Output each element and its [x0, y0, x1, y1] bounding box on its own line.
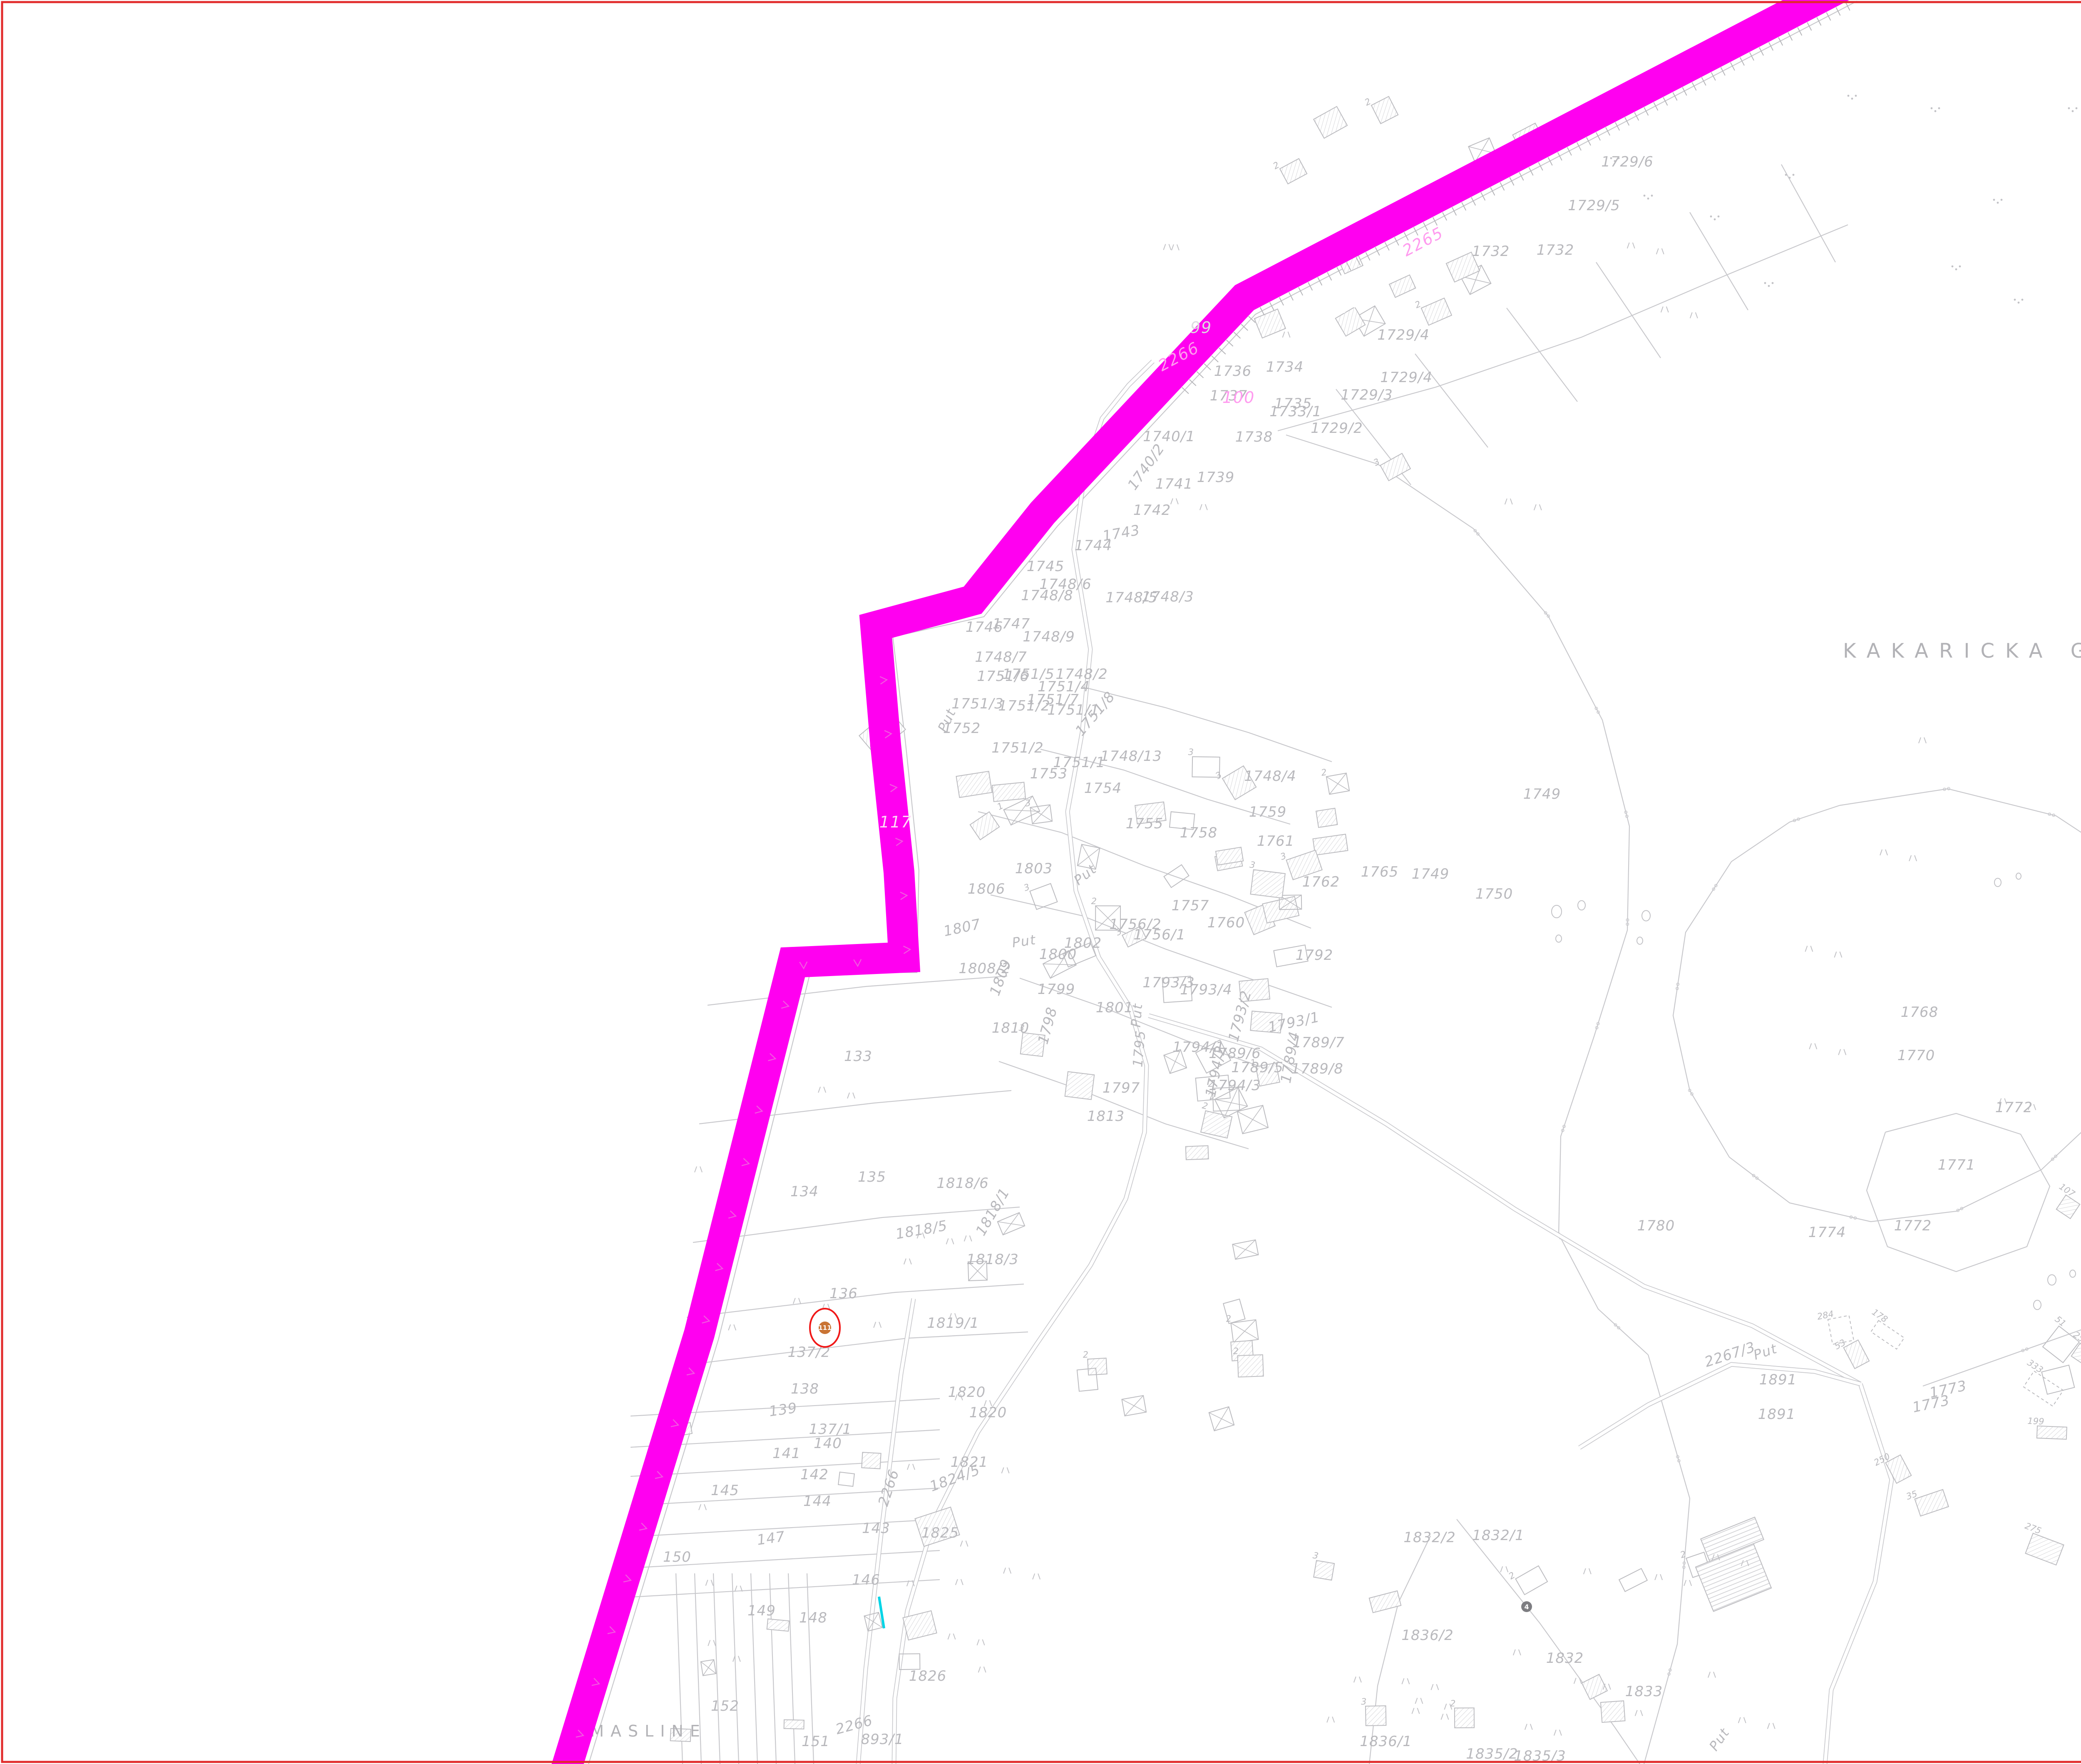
dot-cluster-symbol: [1855, 95, 1857, 97]
dot-cluster-symbol: [2018, 302, 2020, 304]
cadastral-map-sheet: 3321232132233332223222233225727528026528…: [0, 0, 2081, 1764]
road-scarp-tick: [1189, 380, 1196, 386]
parcel-number-label: 1818/6: [936, 1175, 989, 1192]
building-footprint: 2: [1083, 1349, 1107, 1375]
dot-cluster-symbol: [1955, 268, 1957, 271]
parcel-number-label: 141: [772, 1445, 801, 1462]
building-number-label: 199: [2027, 1416, 2044, 1427]
sinkhole-symbol: [2034, 1300, 2041, 1310]
building-number-label: 51: [2053, 1314, 2068, 1329]
sinkhole-symbol: [1637, 937, 1643, 944]
parcel-number-label: 1832/1: [1472, 1527, 1525, 1544]
parcel-number-label: 1748/9: [1023, 629, 1075, 645]
parcel-number-label: 1780: [1637, 1217, 1675, 1234]
road-scarp-tick: [1241, 324, 1248, 330]
building-footprint: 2: [1271, 150, 1307, 186]
grass-tuft-symbol: [1834, 952, 1842, 957]
parcel-boundary-line: [1923, 1207, 2081, 1386]
building-outline: [1201, 1111, 1232, 1138]
building-number-label: 3: [1214, 770, 1224, 781]
parcel-number-label: 1735: [1274, 395, 1312, 412]
building-number-label: 2: [1363, 96, 1373, 107]
sinkhole-symbol: [1994, 878, 2001, 887]
building-cross: [1232, 1240, 1258, 1260]
grass-tuft-symbol: [948, 1634, 956, 1640]
grass-tuft-symbol: [699, 1504, 706, 1510]
building-outline: [784, 1720, 804, 1729]
grass-tuft-symbol: [1656, 248, 1664, 254]
grass-tuft-symbol: [1919, 738, 1926, 743]
parcel-number-label: 1836/2: [1401, 1627, 1454, 1644]
grass-tuft-symbol: [1635, 1710, 1643, 1716]
building-footprint: [1237, 1106, 1268, 1134]
grass-tuft-symbol: [706, 1580, 713, 1586]
building-outline: [992, 782, 1026, 801]
parcel-number-label: 1826: [909, 1668, 947, 1684]
dot-cluster-symbol: [1785, 174, 1787, 176]
building-number-label: 1: [996, 801, 1005, 812]
building-footprint: [1186, 1146, 1209, 1160]
building-outline: [1380, 453, 1411, 481]
parcel-number-label: 1806: [968, 881, 1006, 897]
building-number-label: 178: [1870, 1307, 1890, 1324]
parcel-number-label: 1751/2: [998, 698, 1050, 714]
building-footprint: 333: [2015, 1357, 2069, 1406]
boundary-parallel-line: [579, 1, 1857, 1764]
parcel-number-label: 1772: [1995, 1099, 2033, 1116]
parcel-number-label: 1798: [1035, 1005, 1060, 1046]
building-number-label: 2: [1233, 1346, 1239, 1356]
dot-cluster-symbol: [1647, 198, 1649, 200]
parcel-number-label: 151: [802, 1733, 830, 1750]
boundary-road-label: Put: [1337, 287, 1371, 317]
building-footprint: 178: [1862, 1307, 1910, 1349]
parcel-number-label: 1801: [1096, 999, 1134, 1016]
parcel-number-label: 1772: [1894, 1217, 1932, 1234]
parcel-number-label: 1891: [1759, 1371, 1797, 1388]
building-footprint: [1232, 1240, 1258, 1260]
parcel-number-label: 1818/1: [973, 1185, 1013, 1239]
grass-tuft-symbol: [904, 1259, 911, 1265]
grass-tuft-symbol: [818, 1087, 826, 1093]
dot-cluster-symbol: [1789, 177, 1791, 179]
building-footprint: [767, 1619, 790, 1631]
building-footprint: [2041, 1365, 2074, 1394]
parcel-number-label: 1820: [969, 1404, 1007, 1421]
grass-tuft-symbol: [1708, 1672, 1716, 1678]
parcel-number-label: 1748/7: [975, 649, 1027, 666]
building-outline: [1088, 1358, 1107, 1375]
grass-tuft-symbol: [1505, 499, 1512, 504]
building-number-label: 2: [1320, 767, 1327, 778]
grass-tuft-symbol: [1431, 1684, 1438, 1690]
dot-cluster-symbol: [1997, 202, 1999, 204]
building-outline: [1844, 1340, 1869, 1369]
building-outline: [1915, 1490, 1949, 1516]
parcel-number-label: 1748/3: [1142, 589, 1194, 605]
parcel-number-label: 139: [768, 1400, 798, 1420]
grass-tuft-symbol: [733, 1656, 740, 1662]
sinkhole-symbol: [1578, 901, 1585, 910]
road-scarp-tick: [1234, 332, 1240, 338]
building-outline: [2056, 1195, 2080, 1219]
building-footprint: [1164, 865, 1189, 888]
parcel-number-label: 1732: [1537, 242, 1574, 258]
parcel-number-label: 1799: [1038, 981, 1075, 998]
parcel-number-label: 1748/8: [1021, 587, 1073, 604]
building-footprint: [784, 1720, 804, 1729]
sinkhole-symbol: [2048, 1275, 2056, 1285]
grass-tuft-symbol: [1171, 498, 1178, 504]
parcel-number-label: 138: [791, 1381, 819, 1397]
building-outline: [1030, 884, 1057, 909]
building-footprint: [1316, 808, 1337, 827]
parcel-number-label: 1729/3: [1341, 387, 1393, 403]
building-number-label: 3: [1361, 1697, 1367, 1707]
parcel-number-label: 149: [747, 1603, 776, 1619]
parcel-number-label: 1740/1: [1143, 428, 1195, 445]
building-outline: [1366, 1706, 1386, 1726]
building-outline: [2024, 1371, 2063, 1406]
parcel-number-label: 1749: [1412, 866, 1450, 882]
building-footprint: [1619, 1568, 1647, 1591]
road-name-label: Put: [1011, 932, 1037, 951]
sinkhole-symbol: [1642, 911, 1650, 921]
grass-tuft-symbol: [1172, 244, 1179, 250]
building-outline: [1619, 1568, 1647, 1591]
parcel-number-label: 1751/2: [991, 740, 1044, 756]
parcel-number-label: 1751/3: [951, 696, 1004, 712]
parcel-number-label: 1818/5: [894, 1217, 949, 1243]
sinkhole-symbol: [1552, 905, 1562, 918]
parcel-number-label: 1820: [948, 1384, 986, 1401]
parcel-number-label: 1800: [1039, 946, 1077, 963]
road-scarp-tick: [1204, 364, 1211, 370]
building-cross: [1231, 1320, 1258, 1343]
building-number-label: 2: [1271, 160, 1281, 171]
building-footprint: 2: [1363, 88, 1398, 126]
grass-tuft-symbol: [1402, 1678, 1409, 1684]
parcel-number-label: 1749: [1523, 786, 1561, 802]
parcel-number-label: 1738: [1235, 429, 1273, 445]
parcel-number-label: 145: [711, 1482, 739, 1499]
grass-tuft-symbol: [1534, 504, 1542, 510]
building-footprint: [1209, 1407, 1234, 1431]
parcel-number-label: 1821: [951, 1454, 988, 1471]
place-name-label: MASLINE: [590, 1722, 707, 1740]
building-footprint: [1313, 834, 1348, 855]
parcel-number-label: 1792: [1296, 947, 1334, 964]
building-footprint: 53: [1833, 1332, 1870, 1372]
grass-tuft-symbol: [793, 1298, 801, 1304]
grass-tuft-symbol: [1354, 1677, 1361, 1682]
parcel-number-label: 1762: [1302, 874, 1340, 890]
road-name-label: Put: [1751, 1340, 1779, 1363]
parcel-boundary-line: [1867, 1113, 2050, 1272]
parcel-number-label: 1734: [1266, 359, 1304, 375]
grass-tuft-symbol: [1690, 312, 1698, 318]
building-footprint: [992, 782, 1026, 801]
road-fill: [1825, 1384, 1892, 1764]
parcel-number-label: 1832/2: [1403, 1529, 1456, 1546]
grass-tuft-symbol: [907, 1464, 915, 1470]
road-name-label: Put: [1128, 1002, 1146, 1028]
parcel-number-label: 143: [862, 1520, 890, 1537]
parcel-number-label: 1832: [1546, 1650, 1584, 1667]
grass-tuft-symbol: [956, 1579, 963, 1585]
building-footprint: 2: [1225, 1310, 1259, 1343]
dot-cluster-symbol: [1959, 266, 1961, 268]
building-outline: [1455, 1708, 1474, 1728]
survey-point-marker: 4: [1521, 1601, 1532, 1612]
sinkhole-symbol: [2070, 1270, 2076, 1277]
parcel-number-label: 893/1: [861, 1731, 904, 1748]
building-footprint: 107: [2048, 1181, 2081, 1218]
grass-tuft-symbol: [728, 1324, 736, 1330]
building-footprint: 3: [1361, 1696, 1386, 1726]
parcel-number-label: 1797: [1103, 1080, 1140, 1096]
parcel-number-label: 1891: [1758, 1406, 1796, 1423]
building-number-label: 2: [1083, 1349, 1089, 1360]
building-outline: [1313, 834, 1348, 855]
parcel-number-label: 1761: [1257, 833, 1295, 850]
parcel-number-label: 1793/4: [1180, 981, 1232, 998]
parcel-number-label: 1813: [1087, 1108, 1125, 1125]
building-outline: [956, 771, 992, 798]
road-casing: [1825, 1384, 1892, 1764]
grass-tuft-symbol: [1684, 1580, 1691, 1586]
grass-tuft-symbol: [961, 1541, 968, 1547]
building-footprint: [956, 771, 992, 798]
dot-cluster-symbol: [1851, 98, 1853, 100]
building-footprint: 2: [1450, 1698, 1474, 1728]
building-outline: [1371, 97, 1398, 124]
parcel-number-label: 133: [844, 1048, 872, 1065]
parcel-boundary-line: [1596, 262, 1661, 358]
dot-cluster-symbol: [1718, 216, 1720, 218]
parcel-number-label: 136: [829, 1285, 858, 1302]
strip-parcel-line: [751, 1573, 757, 1764]
grass-tuft-symbol: [1002, 1468, 1009, 1473]
parcel-boundary-line: [683, 1332, 1028, 1365]
grass-tuft-symbol: [1738, 1717, 1746, 1723]
building-number-label: 275: [2024, 1521, 2043, 1536]
parcel-number-label: 1748/13: [1100, 748, 1162, 765]
parcel-number-label: 152: [711, 1698, 739, 1714]
parcel-number-label: 150: [663, 1549, 691, 1565]
grass-tuft-symbol: [1880, 850, 1887, 855]
parcel-number-label: 1729/4: [1380, 369, 1433, 386]
building-outline: [1251, 870, 1285, 898]
building-number-label: 3: [1188, 747, 1194, 757]
grass-tuft-symbol: [964, 1235, 972, 1241]
grass-tuft-symbol: [1655, 1574, 1662, 1580]
parcel-number-label: 148: [799, 1610, 827, 1626]
boundary-road-label: 117: [879, 813, 912, 831]
grass-tuft-symbol: [1500, 1566, 1508, 1572]
building-number-label: 3: [1249, 860, 1256, 870]
grass-tuft-symbol: [1163, 244, 1171, 250]
building-footprint: 199: [2027, 1416, 2067, 1439]
building-outline: [1582, 1675, 1607, 1699]
parcel-number-label: 1825: [921, 1525, 959, 1541]
building-footprint: [1582, 1675, 1607, 1699]
building-number-label: 2: [1201, 1101, 1209, 1111]
markers-layer: 1114: [2, 0, 2081, 1762]
building-outline: [2071, 1343, 2081, 1367]
sinkhole-symbol: [2016, 873, 2021, 880]
building-footprint: [1122, 1396, 1146, 1416]
building-footprint: 2: [1320, 764, 1349, 795]
boundary-road-label: 100: [1222, 388, 1255, 407]
boundary-road-label: 99: [1190, 318, 1212, 337]
grass-tuft-symbol: [1554, 1730, 1562, 1736]
building-outline: [838, 1472, 854, 1486]
dot-cluster-symbol: [1768, 285, 1770, 287]
parcel-number-label: 1794/3: [1209, 1077, 1261, 1094]
control-point-number: 111: [818, 1324, 831, 1332]
building-footprint: [1389, 275, 1415, 298]
parcel-number-label: 1748/4: [1244, 768, 1296, 785]
building-outline: [1389, 275, 1415, 298]
building-outline: [1238, 1355, 1264, 1377]
dot-cluster-symbol: [2068, 107, 2070, 109]
building-cross: [701, 1660, 716, 1675]
parcel-number-label: 1744: [1075, 537, 1113, 554]
building-footprint: [1314, 107, 1347, 138]
parcel-number-label: 1810: [992, 1020, 1030, 1036]
building-footprint: [998, 1212, 1025, 1235]
building-footprint: 3: [1246, 860, 1286, 898]
road-name-label: Put: [1706, 1725, 1733, 1754]
parcel-number-label: 1732: [1472, 243, 1510, 260]
building-outline: [1164, 865, 1189, 888]
building-number-label: 3: [1279, 851, 1287, 862]
parcel-number-label: 1833: [1625, 1683, 1663, 1700]
building-cross: [1209, 1407, 1234, 1431]
building-footprint: 2: [1197, 1101, 1234, 1138]
parcel-number-label: 1819/1: [927, 1315, 979, 1332]
building-outline: [1186, 1146, 1209, 1160]
dot-cluster-symbol: [1993, 199, 1995, 201]
parcel-number-label: 1760: [1207, 914, 1245, 931]
strip-parcel-line: [770, 1573, 776, 1764]
building-outline: [1871, 1320, 1904, 1349]
parcel-boundary-line: [1781, 164, 1835, 262]
grass-tuft-symbol: [708, 1640, 715, 1646]
building-outline: [2037, 1426, 2067, 1439]
road-scarp-tick: [1197, 372, 1203, 378]
building-outline: [1601, 1701, 1625, 1722]
parcel-boundary-line: [1507, 308, 1577, 402]
grass-tuft-symbol: [977, 1640, 985, 1645]
building-outline: [1254, 309, 1286, 338]
road-scarp-tick: [1219, 348, 1226, 354]
parcel-number-label: 142: [800, 1466, 829, 1483]
building-footprint: 35: [1905, 1481, 1949, 1518]
parcel-number-label: 1754: [1084, 780, 1122, 797]
cadastral-map-canvas: 3321232132233332223222233225727528026528…: [0, 0, 2081, 1764]
building-outline: [1065, 1072, 1095, 1100]
parcel-number-label: 1773: [1911, 1392, 1951, 1416]
road-scarp-tick: [1212, 356, 1218, 362]
parcel-number-label: 1756/1: [1133, 927, 1186, 943]
building-outline: [1515, 1566, 1547, 1595]
grass-tuft-symbol: [1584, 1568, 1591, 1574]
building-number-label: 284: [1816, 1309, 1835, 1322]
building-number-label: 2: [1507, 1570, 1517, 1581]
dot-cluster-symbol: [1931, 107, 1933, 109]
grass-tuft-symbol: [1805, 946, 1813, 952]
grass-tuft-symbol: [1809, 1043, 1817, 1049]
parcel-number-label: 1736: [1214, 363, 1252, 380]
building-outline: [862, 1452, 881, 1469]
survey-point-number: 4: [1524, 1603, 1529, 1611]
building-number-label: 3: [1022, 882, 1031, 893]
dot-cluster-symbol: [2072, 110, 2074, 112]
building-outline: [1421, 298, 1452, 325]
map-sheet-frame: [2, 2, 2081, 1762]
parcel-boundary-line: [1286, 435, 1648, 1355]
building-footprint: [1601, 1701, 1625, 1722]
road-name-label: 1795: [1130, 1029, 1149, 1068]
grass-tuft-symbol: [1909, 855, 1917, 861]
strip-parcel-line: [713, 1573, 720, 1764]
grass-tuft-symbol: [1838, 1049, 1846, 1055]
grass-tuft-symbol: [1415, 1698, 1423, 1704]
parcel-number-label: 140: [814, 1435, 842, 1452]
grass-tuft-symbol: [978, 1667, 986, 1672]
parcel-number-label: 1729/6: [1601, 154, 1654, 170]
parcel-boundary-line: [1415, 354, 1488, 447]
grass-tuft-symbol: [847, 1093, 855, 1098]
grass-tuft-symbol: [1412, 1708, 1419, 1714]
building-outline: [767, 1619, 790, 1631]
parcel-number-label: 1789/5: [1231, 1059, 1284, 1076]
parcel-number-label: 1729/4: [1377, 327, 1430, 343]
grass-tuft-symbol: [1513, 1650, 1521, 1655]
building-outline: [2041, 1365, 2074, 1394]
dot-cluster-symbol: [1714, 219, 1716, 221]
dot-cluster-symbol: [1848, 95, 1850, 97]
grass-tuft-symbol: [874, 1322, 881, 1328]
grass-tuft-symbol: [1200, 504, 1207, 510]
building-footprint: 2: [1507, 1558, 1547, 1597]
parcel-number-label: 1759: [1249, 804, 1287, 820]
building-number-label: 2: [1679, 1549, 1687, 1560]
control-point-marker: 111: [810, 1309, 840, 1347]
strip-parcel-line: [788, 1573, 795, 1764]
dot-cluster-symbol: [1938, 107, 1940, 109]
grass-tuft-symbol: [1441, 1714, 1448, 1719]
building-footprint: [838, 1472, 854, 1486]
road-scarp-tick: [1182, 388, 1189, 394]
building-footprint: [1254, 309, 1286, 338]
parcel-number-label: 1742: [1133, 502, 1171, 519]
dot-cluster-symbol: [1710, 216, 1712, 218]
grass-tuft-symbol: [1033, 1573, 1040, 1579]
grass-tuft-symbol: [1283, 332, 1290, 338]
building-number-label: 2: [1091, 896, 1097, 906]
strip-parcel-line: [732, 1573, 739, 1764]
building-footprint: 284: [1816, 1306, 1854, 1346]
parcel-number-label: 135: [858, 1169, 886, 1185]
parcel-number-label: 144: [803, 1493, 832, 1510]
dot-cluster-symbol: [2014, 299, 2016, 301]
parcel-number-label: 1750: [1475, 886, 1513, 902]
building-footprint: 3: [1309, 1550, 1336, 1580]
parcel-number-label: 1729/2: [1311, 420, 1363, 437]
